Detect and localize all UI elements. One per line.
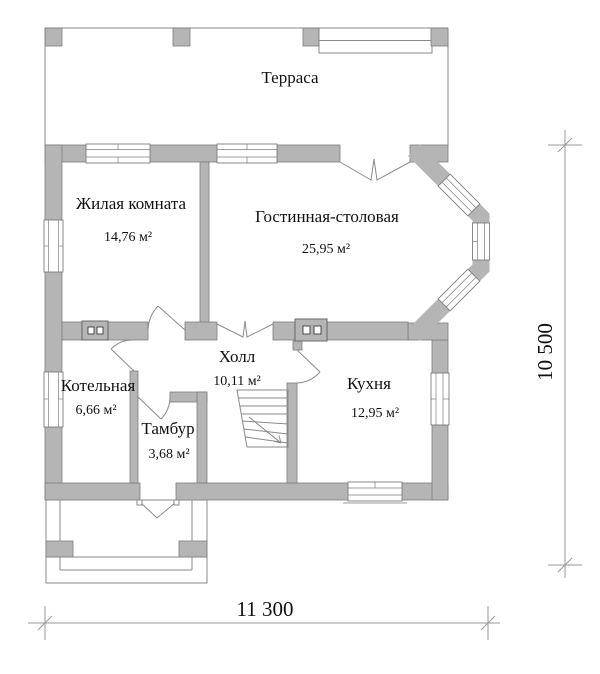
door-entrance xyxy=(137,500,179,518)
room-label-living-dining: Гостинная-столовая xyxy=(255,207,399,226)
door-terrace-french xyxy=(340,159,410,180)
room-label-kitchen: Кухня xyxy=(347,374,391,393)
window-right-kitchen xyxy=(431,373,449,425)
room-area-living-dining: 25,95 м² xyxy=(302,242,350,257)
staircase xyxy=(237,390,288,447)
dimension-width-label: 11 300 xyxy=(237,597,294,621)
dimension-height: 10 500 xyxy=(533,130,582,578)
window-bay-center xyxy=(473,223,490,260)
room-area-boiler: 6,66 м² xyxy=(75,403,116,418)
panel-kitchen-wall xyxy=(295,319,327,341)
floor-plan-page: 11 300 10 500 Терраса Жилая комната 14,7… xyxy=(0,0,600,674)
room-label-terrace: Терраса xyxy=(261,68,319,87)
dimension-height-label: 10 500 xyxy=(533,323,557,381)
window-bay-lower xyxy=(438,269,480,311)
window-top-2 xyxy=(217,144,277,163)
room-area-vestibule: 3,68 м² xyxy=(148,447,189,462)
door-boiler xyxy=(111,340,134,371)
terrace-outline xyxy=(45,28,448,146)
window-bottom-kitchen xyxy=(343,482,407,503)
room-area-hall: 10,11 м² xyxy=(213,374,261,389)
terrace-pillars xyxy=(45,28,448,46)
room-label-living-room: Жилая комната xyxy=(76,194,187,213)
room-area-kitchen: 12,95 м² xyxy=(351,406,399,421)
window-left-living xyxy=(44,220,63,272)
door-kitchen xyxy=(297,350,320,383)
room-label-hall: Холл xyxy=(219,347,256,366)
room-label-vestibule: Тамбур xyxy=(141,419,194,438)
terrace-railing xyxy=(319,28,432,53)
panel-living-wall xyxy=(82,321,108,340)
window-bay-upper xyxy=(438,174,480,216)
opening-hall-dining xyxy=(217,321,273,337)
porch xyxy=(46,500,207,583)
door-vestibule xyxy=(138,397,170,419)
dimension-width: 11 300 xyxy=(28,597,500,640)
room-label-boiler: Котельная xyxy=(61,376,136,395)
window-top-1 xyxy=(86,144,150,163)
floor-plan-drawing: 11 300 10 500 Терраса Жилая комната 14,7… xyxy=(0,0,600,674)
door-living-room xyxy=(148,306,185,330)
room-labels: Терраса Жилая комната 14,76 м² Гостинная… xyxy=(61,68,399,462)
room-area-living-room: 14,76 м² xyxy=(104,230,152,245)
porch-pillars xyxy=(46,541,207,557)
